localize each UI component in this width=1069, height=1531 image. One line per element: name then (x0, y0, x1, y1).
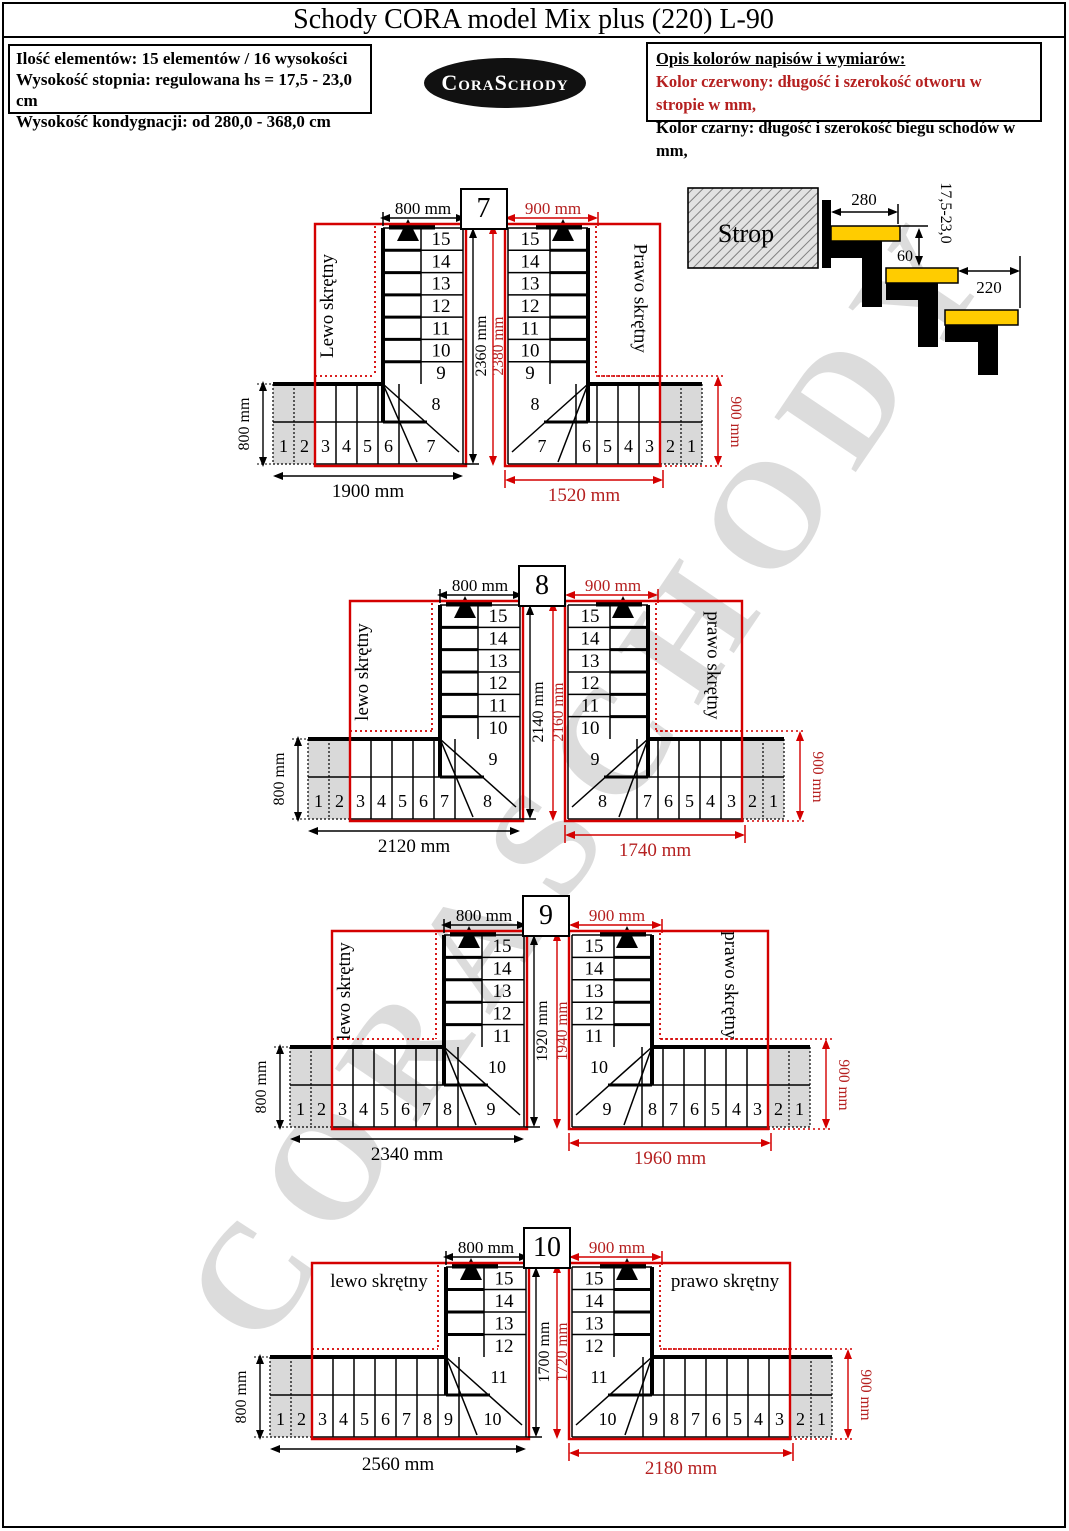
opening-run-dim: 2180 mm (645, 1458, 718, 1479)
opening-side-dim: 900 mm (809, 751, 826, 802)
opening-width-dim: 900 mm (525, 199, 581, 218)
riser-height-range-dim: 17,5-23,0 (937, 182, 954, 243)
step-number: 1 (769, 791, 778, 811)
opening-length-dim: 1940 mm (554, 1002, 571, 1061)
step-number: 8 (648, 1099, 657, 1119)
variant-number-box-9: 9 (522, 895, 570, 937)
spec-sheet-page: Schody CORA model Mix plus (220) L-90 Il… (0, 0, 1069, 1531)
step-number: 2 (335, 791, 344, 811)
step-number: 11 (521, 318, 539, 339)
step-number: 9 (603, 1099, 612, 1119)
step-number: 13 (495, 1313, 514, 1334)
nosing-overlap-dim: 60 (897, 248, 913, 265)
step-number: 10 (432, 341, 451, 362)
step-number: 6 (419, 791, 428, 811)
step-number: 7 (440, 791, 449, 811)
step-number: 8 (598, 791, 607, 811)
stair-plan-variant8-left: 151413121110123456789lewo skrętny800 mm8… (271, 576, 547, 857)
step-number: 10 (489, 718, 508, 739)
step-number: 3 (775, 1409, 784, 1429)
flight-width-dim: 800 mm (452, 576, 508, 595)
up-direction-arrow (454, 596, 476, 618)
step-number: 11 (489, 696, 507, 717)
run-length-dim: 2340 mm (371, 1144, 444, 1165)
opening-run-dim: 1960 mm (634, 1148, 707, 1169)
direction-label: Prawo skrętny (629, 244, 650, 354)
step-number: 1 (276, 1409, 285, 1429)
step-number: 13 (521, 274, 540, 295)
step-number: 4 (624, 436, 633, 456)
step-number: 6 (401, 1099, 410, 1119)
step-number: 3 (356, 791, 365, 811)
step-number: 6 (712, 1409, 721, 1429)
step-number: 2 (666, 436, 675, 456)
step-number: 5 (363, 436, 372, 456)
step-number: 5 (711, 1099, 720, 1119)
step-number: 15 (493, 936, 512, 957)
variant-number-box-7: 7 (460, 188, 508, 230)
up-direction-arrow (552, 219, 574, 241)
step-number: 10 (590, 1057, 608, 1077)
step-number: 13 (585, 1313, 604, 1334)
entry-width-dim: 800 mm (236, 397, 253, 450)
step-number: 4 (377, 791, 386, 811)
step-number: 11 (493, 1026, 511, 1047)
direction-label: lewo skrętny (352, 623, 373, 721)
step-number: 1 (296, 1099, 305, 1119)
step-number: 12 (493, 1003, 512, 1024)
step-number: 14 (585, 1291, 605, 1312)
step-number: 14 (489, 629, 509, 650)
step-number: 8 (423, 1409, 432, 1429)
step-number: 2 (300, 436, 309, 456)
tread (831, 226, 900, 241)
run-height-dim: 1700 mm (536, 1321, 553, 1382)
step-number: 9 (487, 1099, 496, 1119)
step-number: 7 (422, 1099, 431, 1119)
step-number: 7 (669, 1099, 678, 1119)
step-number: 5 (733, 1409, 742, 1429)
entry-width-dim: 800 mm (271, 752, 288, 805)
step-number: 3 (318, 1409, 327, 1429)
run-height-dim: 1920 mm (534, 1000, 551, 1061)
step-number: 14 (585, 959, 605, 980)
step-number: 7 (691, 1409, 700, 1429)
flight-width-dim: 800 mm (395, 199, 451, 218)
step-number: 7 (538, 436, 547, 456)
step-number: 10 (521, 341, 540, 362)
step-number: 1 (817, 1409, 826, 1429)
step-number: 11 (590, 1367, 607, 1387)
run-length-dim: 2120 mm (378, 836, 451, 857)
flight-width-dim: 800 mm (456, 906, 512, 925)
step-number: 11 (432, 318, 450, 339)
up-direction-arrow (458, 926, 480, 948)
step-number: 13 (432, 274, 451, 295)
step-number: 13 (493, 981, 512, 1002)
tread (945, 310, 1018, 325)
step-number: 11 (581, 696, 599, 717)
step-number: 13 (581, 651, 600, 672)
step-number: 2 (297, 1409, 306, 1429)
step-number: 3 (321, 436, 330, 456)
run-length-dim: 1900 mm (332, 481, 405, 502)
run-height-dim: 2140 mm (530, 681, 547, 742)
opening-side-dim: 900 mm (857, 1369, 874, 1420)
step-number: 6 (664, 791, 673, 811)
variant-number-box-8: 8 (518, 565, 566, 607)
step-number: 5 (360, 1409, 369, 1429)
step-number: 13 (489, 651, 508, 672)
entry-width-dim: 800 mm (233, 1370, 250, 1423)
step-number: 10 (488, 1057, 506, 1077)
step-number: 1 (795, 1099, 804, 1119)
step-number: 4 (342, 436, 351, 456)
opening-side-dim: 900 mm (835, 1059, 852, 1110)
step-number: 13 (585, 981, 604, 1002)
step-number: 14 (432, 251, 452, 272)
step-number: 10 (599, 1409, 617, 1429)
step-number: 15 (495, 1268, 514, 1289)
step-number: 5 (603, 436, 612, 456)
step-number: 1 (687, 436, 696, 456)
step-number: 4 (732, 1099, 741, 1119)
step-number: 8 (670, 1409, 679, 1429)
step-number: 12 (581, 673, 600, 694)
step-number: 2 (796, 1409, 805, 1429)
direction-label: lewo skrętny (334, 942, 355, 1040)
step-number: 6 (690, 1099, 699, 1119)
step-number: 8 (531, 394, 540, 414)
direction-label: lewo skrętny (330, 1271, 428, 1292)
step-number: 15 (489, 606, 508, 627)
stair-plan-variant9-right: 151413121112345678910prawo skrętny900 mm… (553, 906, 852, 1169)
step-number: 12 (585, 1336, 604, 1357)
step-number: 4 (706, 791, 715, 811)
stair-plan-variant10-left: 151413121234567891011lewo skrętny800 mm8… (233, 1238, 553, 1475)
stair-plan-variant7-left: 151413121110912345678Lewo skrętny800 mm8… (236, 199, 490, 502)
step-number: 15 (585, 936, 604, 957)
step-number: 2 (317, 1099, 326, 1119)
entry-width-dim: 800 mm (253, 1060, 270, 1113)
opening-length-dim: 2380 mm (490, 317, 507, 376)
stair-plan-variant8-right: 151413121110123456789prawo skrętny900 mm… (549, 576, 826, 861)
step-number: 8 (432, 394, 441, 414)
step-number: 14 (581, 629, 601, 650)
up-direction-arrow (612, 596, 634, 618)
tread-depth-dim: 220 (976, 278, 1002, 297)
up-direction-arrow (460, 1258, 482, 1280)
opening-width-dim: 900 mm (589, 906, 645, 925)
tread (886, 268, 958, 283)
step-number: 15 (521, 229, 540, 250)
stair-section-sketch: Strop28017,5-23,060220 (688, 182, 1020, 375)
up-direction-arrow (616, 926, 638, 948)
step-number: 7 (402, 1409, 411, 1429)
opening-run-dim: 1740 mm (619, 840, 692, 861)
step-number: 12 (495, 1336, 514, 1357)
up-direction-arrow (397, 219, 419, 241)
step-number: 9 (489, 749, 498, 769)
step-number: 4 (754, 1409, 763, 1429)
step-number: 3 (645, 436, 654, 456)
step-number: 6 (582, 436, 591, 456)
step-number: 1 (314, 791, 323, 811)
step-number: 2 (748, 791, 757, 811)
step-number: 15 (432, 229, 451, 250)
opening-width-dim: 900 mm (585, 576, 641, 595)
step-number: 12 (521, 296, 540, 317)
step-number: 5 (685, 791, 694, 811)
step-number: 9 (525, 363, 535, 384)
step-number: 10 (581, 718, 600, 739)
step-number: 5 (380, 1099, 389, 1119)
direction-label: prawo skrętny (671, 1271, 780, 1292)
flight-width-dim: 800 mm (458, 1238, 514, 1257)
stair-plan-variant10-right: 151413121234567891011prawo skrętny900 mm… (553, 1238, 874, 1479)
step-number: 2 (774, 1099, 783, 1119)
step-number: 4 (359, 1099, 368, 1119)
slab-label: Strop (718, 219, 774, 248)
variant-number-box-10: 10 (523, 1227, 571, 1269)
step-number: 5 (398, 791, 407, 811)
opening-width-dim: 900 mm (589, 1238, 645, 1257)
opening-length-dim: 1720 mm (554, 1323, 571, 1382)
tread-depth-top-dim: 280 (851, 190, 877, 209)
step-number: 12 (432, 296, 451, 317)
step-number: 4 (339, 1409, 348, 1429)
step-number: 1 (279, 436, 288, 456)
step-number: 12 (585, 1003, 604, 1024)
step-number: 9 (436, 363, 446, 384)
step-number: 9 (591, 749, 600, 769)
stair-diagrams-layer: 151413121110912345678Lewo skrętny800 mm8… (0, 0, 1069, 1531)
step-number: 15 (585, 1268, 604, 1289)
stair-plan-variant9-left: 151413121112345678910lewo skrętny800 mm8… (253, 906, 551, 1165)
run-length-dim: 2560 mm (362, 1454, 435, 1475)
step-number: 3 (338, 1099, 347, 1119)
step-number: 12 (489, 673, 508, 694)
step-number: 6 (381, 1409, 390, 1429)
step-number: 7 (643, 791, 652, 811)
step-number: 3 (753, 1099, 762, 1119)
opening-length-dim: 2160 mm (550, 683, 567, 742)
step-number: 8 (443, 1099, 452, 1119)
direction-label: prawo skrętny (720, 931, 741, 1040)
direction-label: Lewo skrętny (317, 254, 338, 358)
step-number: 14 (495, 1291, 515, 1312)
step-number: 14 (493, 959, 513, 980)
step-number: 9 (649, 1409, 658, 1429)
direction-label: prawo skrętny (703, 611, 724, 720)
step-number: 11 (490, 1367, 507, 1387)
up-direction-arrow (616, 1258, 638, 1280)
step-number: 3 (727, 791, 736, 811)
step-number: 11 (585, 1026, 603, 1047)
step-number: 14 (521, 251, 541, 272)
opening-run-dim: 1520 mm (548, 485, 621, 506)
step-number: 8 (483, 791, 492, 811)
step-number: 10 (484, 1409, 502, 1429)
step-number: 7 (427, 436, 436, 456)
step-number: 15 (581, 606, 600, 627)
opening-side-dim: 900 mm (727, 396, 744, 447)
run-height-dim: 2360 mm (473, 315, 490, 376)
step-number: 9 (444, 1409, 453, 1429)
step-number: 6 (384, 436, 393, 456)
